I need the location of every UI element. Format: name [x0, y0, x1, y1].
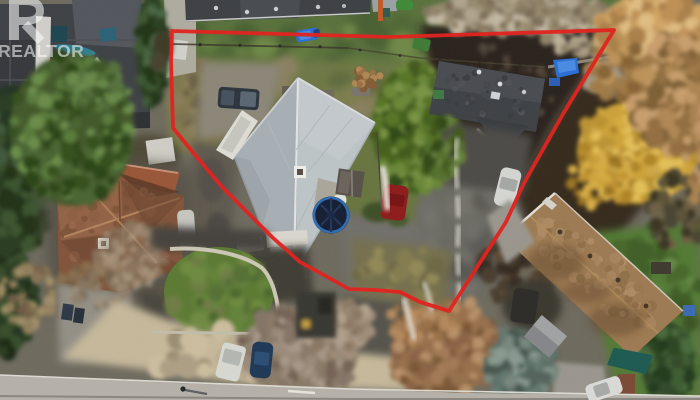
svg-text:REALTOR: REALTOR [0, 41, 84, 61]
